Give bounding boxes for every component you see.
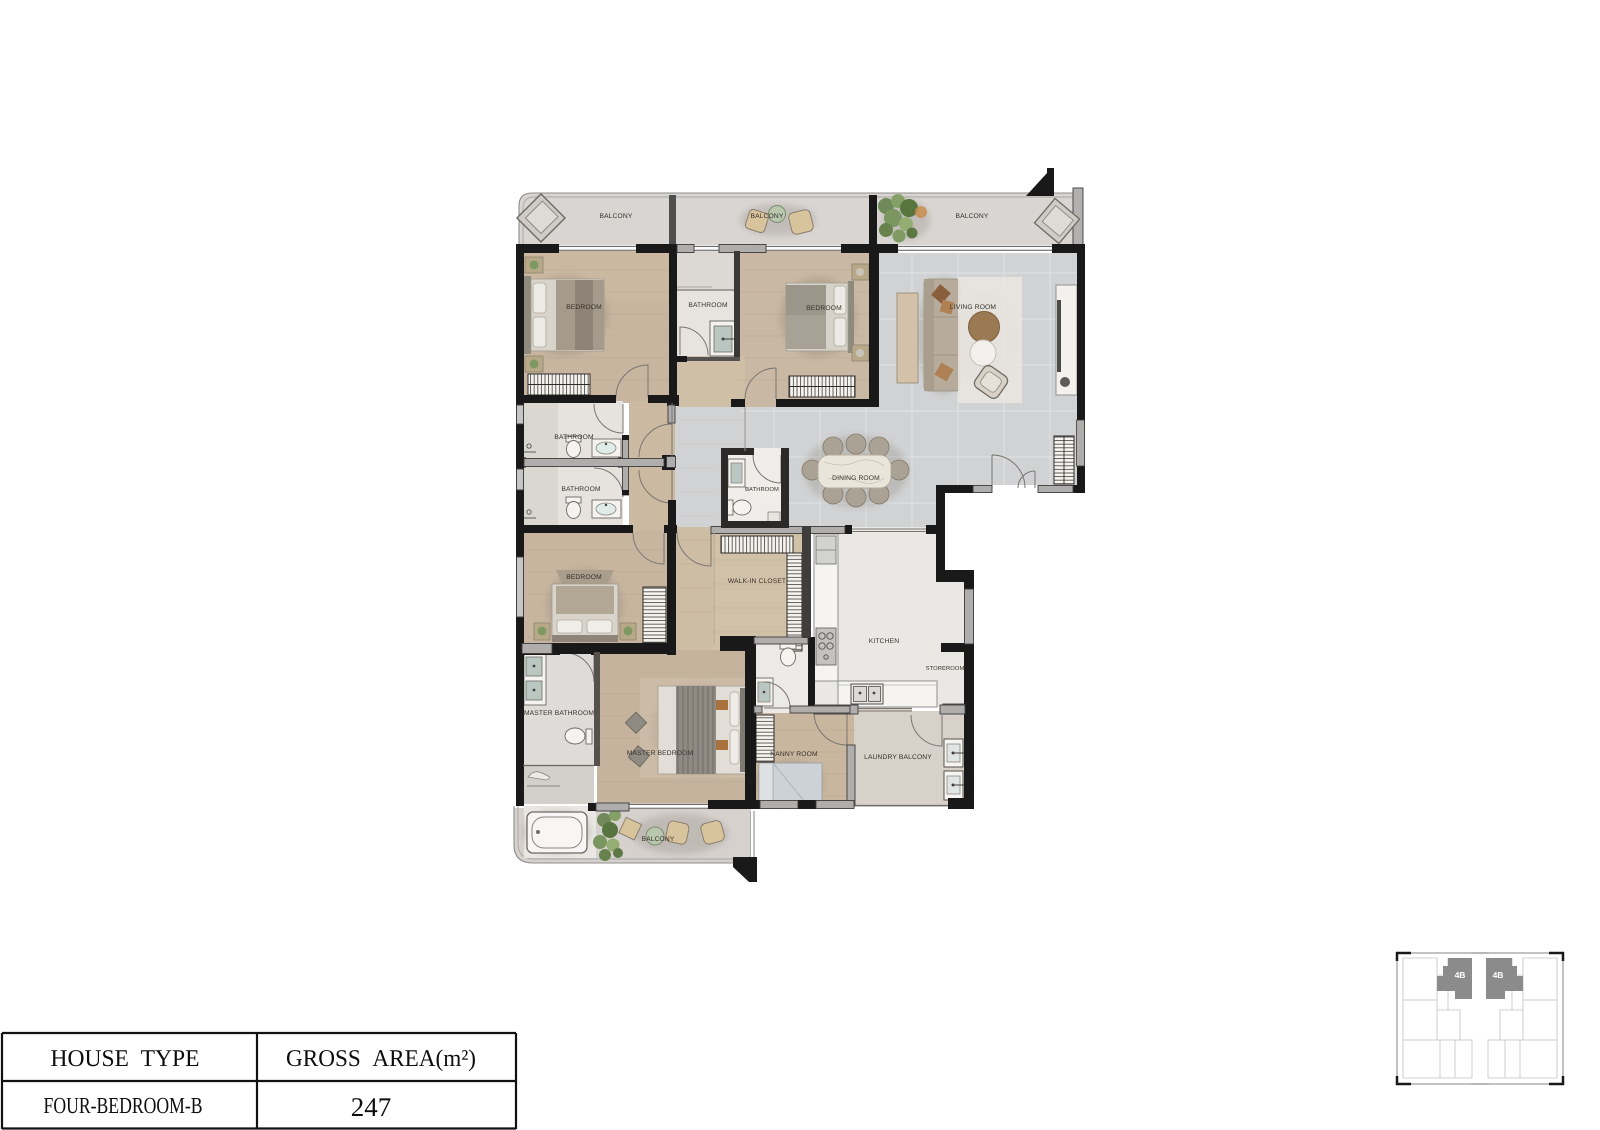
svg-text:KITCHEN: KITCHEN bbox=[869, 638, 899, 645]
svg-text:WALK-IN CLOSET: WALK-IN CLOSET bbox=[728, 578, 786, 585]
svg-text:4B: 4B bbox=[1493, 970, 1504, 980]
svg-text:HOUSE TYPE: HOUSE TYPE bbox=[51, 1046, 200, 1072]
svg-text:4B: 4B bbox=[1455, 970, 1466, 980]
svg-text:BATHROOM: BATHROOM bbox=[561, 486, 601, 493]
svg-text:GROSS AREA(m²): GROSS AREA(m²) bbox=[286, 1046, 476, 1072]
svg-text:BALCONY: BALCONY bbox=[641, 836, 674, 843]
svg-text:LIVING ROOM: LIVING ROOM bbox=[950, 304, 997, 311]
svg-text:DINING ROOM: DINING ROOM bbox=[832, 475, 880, 482]
svg-text:BEDROOM: BEDROOM bbox=[566, 304, 602, 311]
svg-text:247: 247 bbox=[351, 1092, 392, 1122]
svg-text:LAUNDRY BALCONY: LAUNDRY BALCONY bbox=[864, 754, 932, 761]
svg-text:BALCONY: BALCONY bbox=[750, 213, 783, 220]
svg-text:BALCONY: BALCONY bbox=[599, 213, 632, 220]
svg-text:STOREROOM: STOREROOM bbox=[926, 665, 965, 672]
svg-text:BATHROOM: BATHROOM bbox=[745, 486, 779, 493]
svg-text:BATHROOM: BATHROOM bbox=[688, 302, 728, 309]
svg-text:FOUR-BEDROOM-B: FOUR-BEDROOM-B bbox=[44, 1093, 203, 1118]
svg-text:BEDROOM: BEDROOM bbox=[566, 574, 602, 581]
svg-text:MASTER BEDROOM: MASTER BEDROOM bbox=[627, 750, 694, 757]
svg-text:BATHROOM: BATHROOM bbox=[554, 434, 594, 441]
svg-text:NANNY ROOM: NANNY ROOM bbox=[770, 751, 818, 758]
svg-text:BALCONY: BALCONY bbox=[955, 213, 988, 220]
svg-text:BEDROOM: BEDROOM bbox=[806, 305, 842, 312]
svg-text:MASTER BATHROOM: MASTER BATHROOM bbox=[524, 710, 594, 717]
